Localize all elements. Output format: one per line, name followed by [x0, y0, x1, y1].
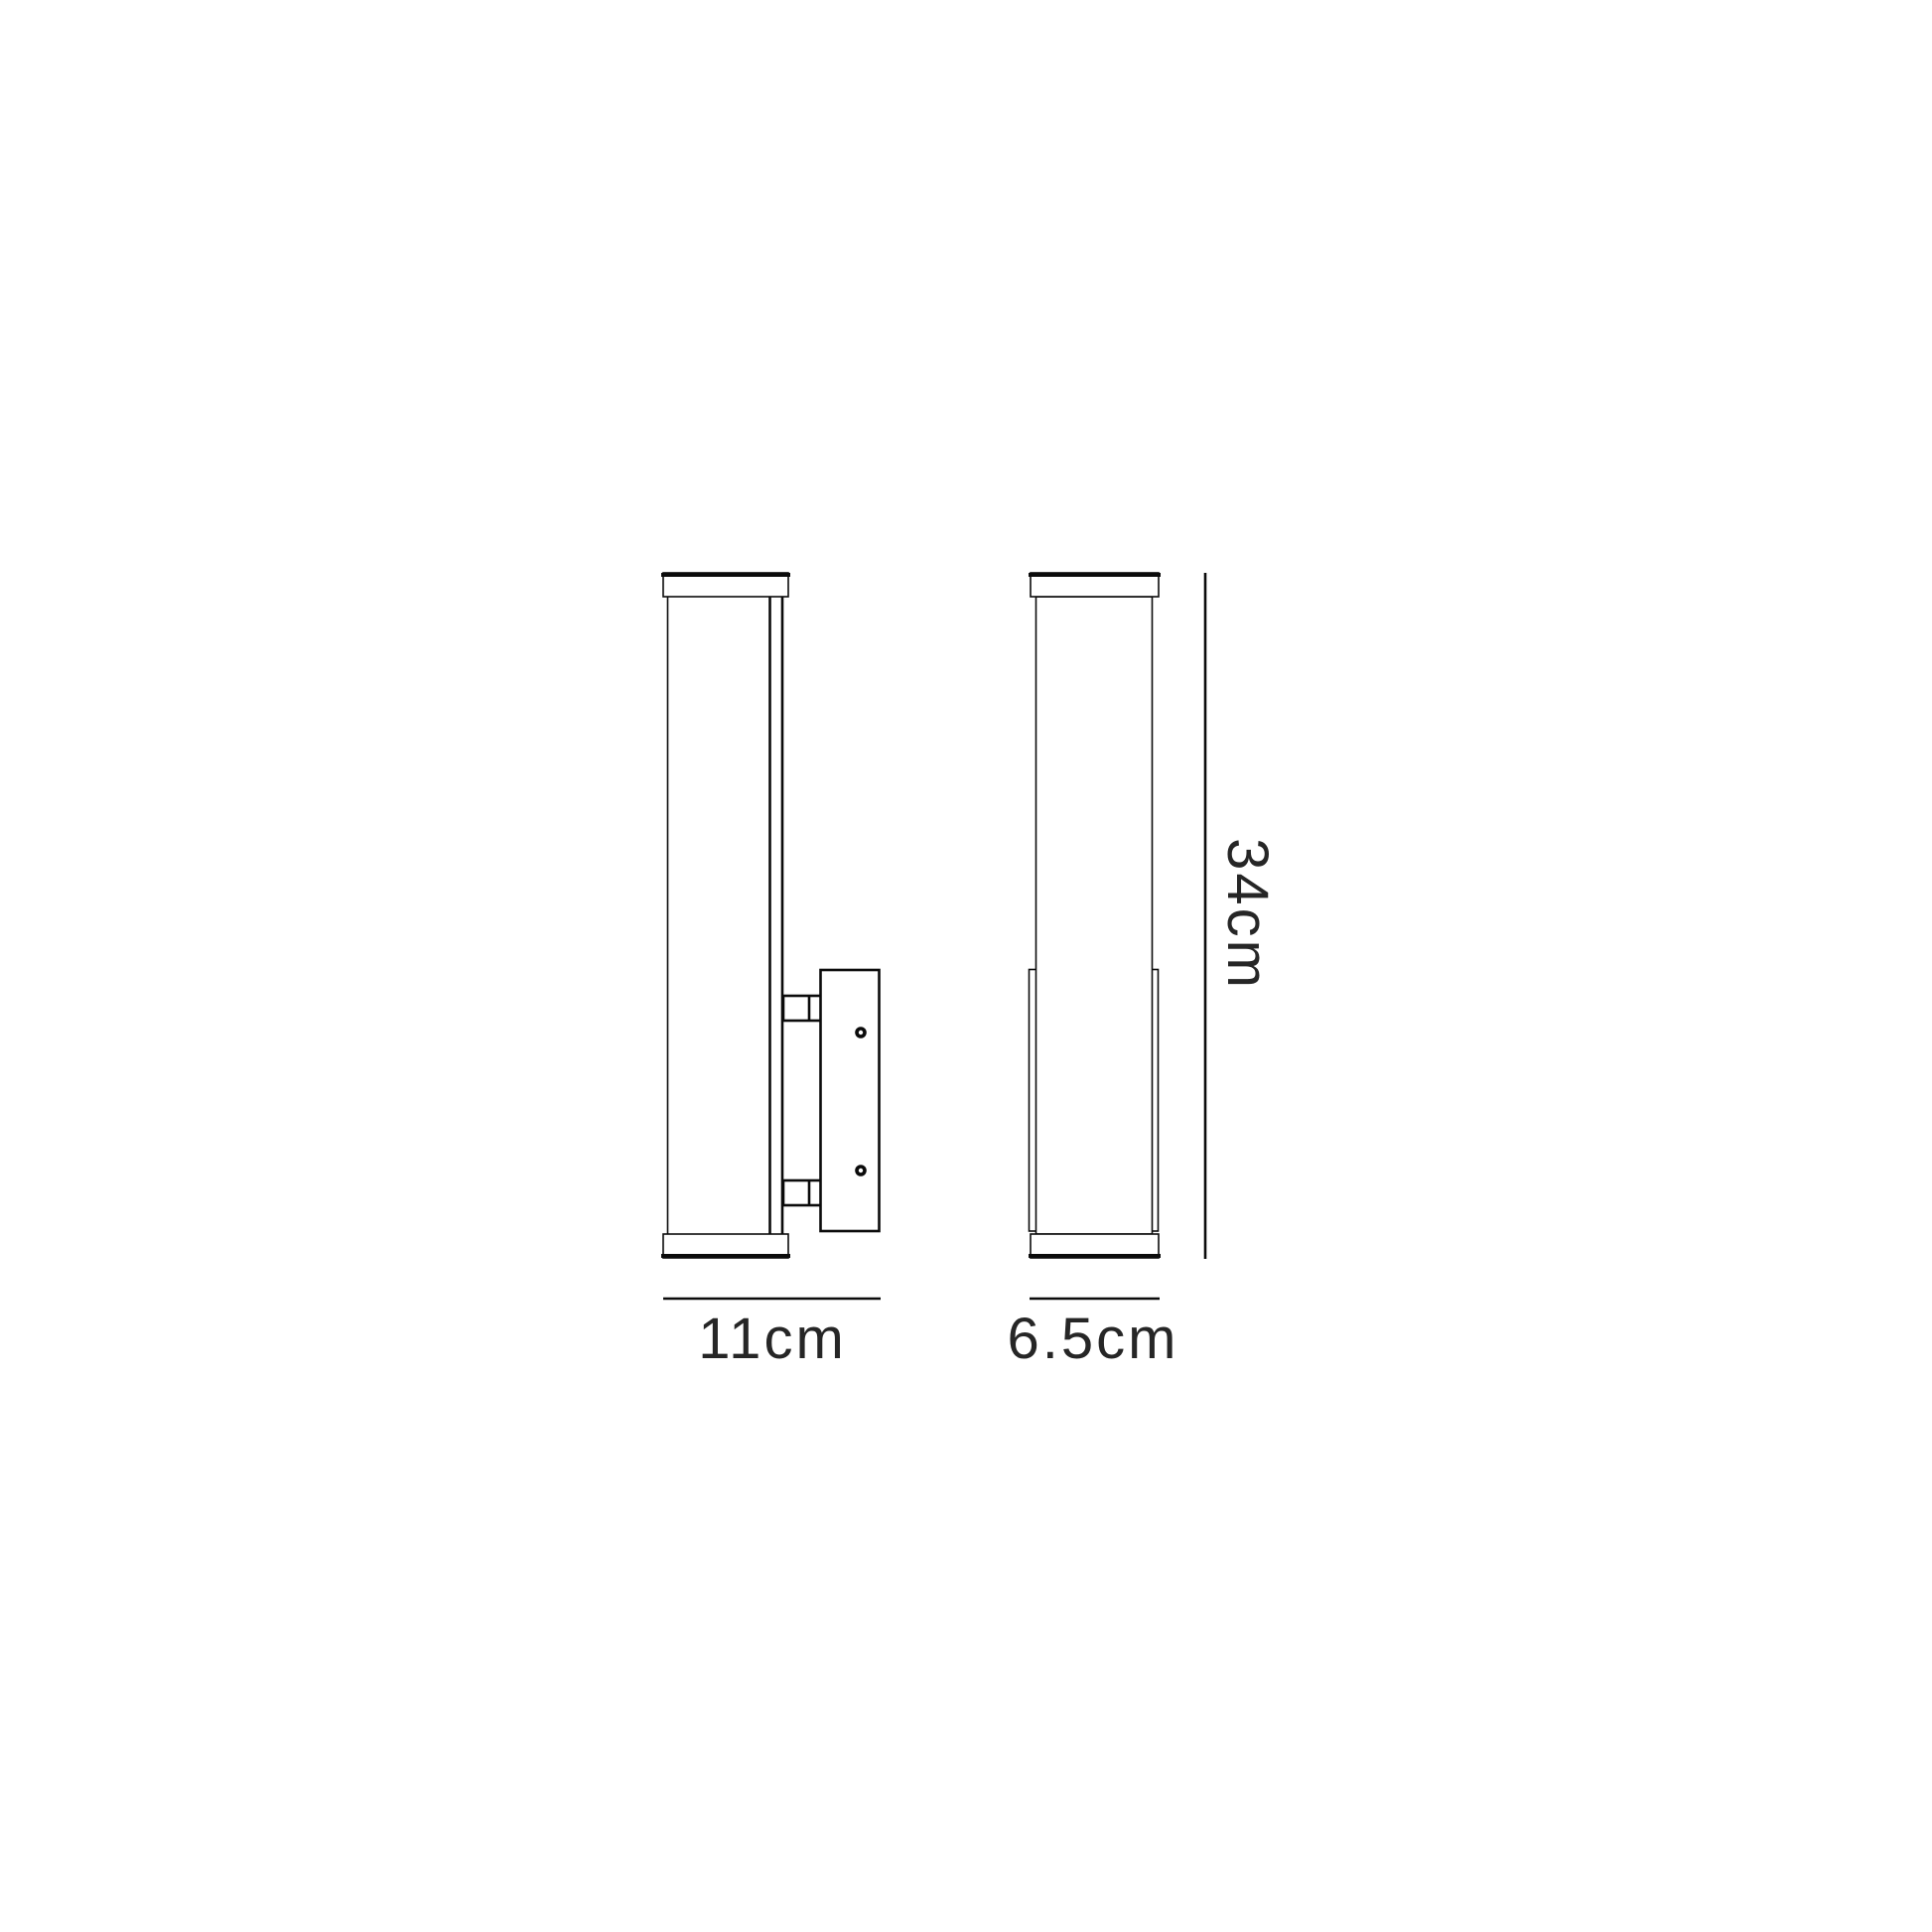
side-width-dimension-label: 6.5cm	[1008, 1307, 1179, 1371]
front-width-dimension-label: 11cm	[698, 1307, 847, 1371]
diagram-canvas: 34cm 11cm 6.5cm	[0, 0, 1932, 1932]
front-top-connector	[783, 996, 821, 1021]
wall-light-dimension-drawing: 34cm 11cm 6.5cm	[0, 0, 1932, 1932]
side-tube-body	[1036, 597, 1153, 1234]
height-dimension-label: 34cm	[1215, 838, 1280, 991]
front-view	[661, 573, 880, 1258]
front-bottom-connector	[783, 1180, 821, 1205]
side-view	[1029, 573, 1161, 1258]
mounting-plate	[821, 970, 880, 1231]
